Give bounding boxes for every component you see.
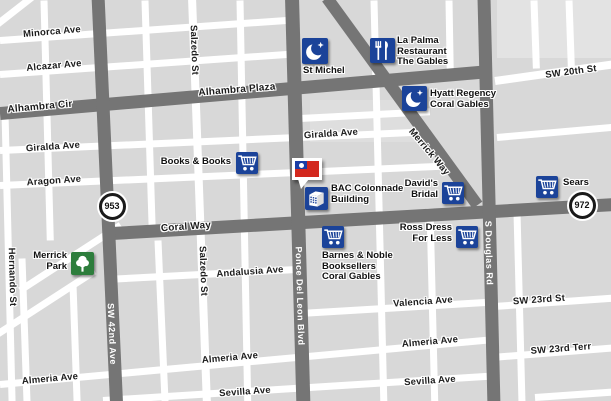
poi-label-line: Ross Dress: [400, 223, 452, 234]
street-label-s-douglas-rd: S Douglas Rd: [483, 221, 495, 286]
flag-marker-pointer: [298, 179, 309, 189]
road-east-mid-st: [497, 123, 611, 140]
poi-label-line: Building: [331, 195, 403, 206]
poi-sears-label: Sears: [563, 178, 589, 189]
poi-label-line: David's: [405, 179, 438, 190]
poi-label-line: Coral Gables: [430, 100, 496, 111]
street-label-sevilla-ave: Sevilla Ave: [404, 374, 456, 389]
street-label-almeria-ave: Almeria Ave: [21, 371, 78, 387]
poi-merrick-park-park-icon[interactable]: [71, 252, 94, 275]
poi-label-line: St Michel: [303, 66, 345, 77]
flag-sun: [299, 163, 304, 168]
poi-label-line: Books & Books: [161, 157, 231, 168]
poi-books-and-books-shopping-cart-icon[interactable]: [236, 152, 258, 174]
street-label-andalusia-ave: Andalusia Ave: [216, 264, 284, 280]
street-label-hernando-st: Hernando St: [6, 248, 18, 307]
poi-st-michel-hotel-icon[interactable]: [302, 38, 328, 64]
poi-bac-colonnade-building-icon[interactable]: [305, 187, 328, 210]
road-west-st-3: [70, 284, 81, 401]
poi-barnes-noble-shopping-cart-icon[interactable]: [322, 226, 344, 248]
poi-barnes-noble-label: Barnes & NobleBooksellersCoral Gables: [322, 251, 393, 283]
flag-marker[interactable]: [292, 158, 322, 180]
poi-label-line: Sears: [563, 178, 589, 189]
route-shield-972: 972: [569, 192, 596, 219]
road-topleft-diagonal: [0, 0, 41, 31]
poi-davids-bridal-label: David'sBridal: [405, 179, 438, 200]
poi-label-line: La Palma: [397, 36, 448, 47]
poi-davids-bridal-shopping-cart-icon[interactable]: [442, 182, 464, 204]
poi-label-line: Merrick: [33, 251, 67, 262]
city-block-block-ne-light: [497, 0, 611, 58]
poi-la-palma-restaurant-icon[interactable]: [370, 38, 395, 63]
poi-bac-colonnade-label: BAC ColonnadeBuilding: [331, 184, 403, 205]
poi-ross-dress-label: Ross DressFor Less: [400, 223, 452, 244]
poi-label-line: Park: [33, 262, 67, 273]
poi-ross-dress-shopping-cart-icon[interactable]: [456, 226, 478, 248]
poi-label-line: For Less: [400, 234, 452, 245]
poi-label-line: Hyatt Regency: [430, 89, 496, 100]
poi-label-line: The Gables: [397, 57, 448, 68]
poi-label-line: Barnes & Noble: [322, 251, 393, 262]
poi-merrick-park-label: MerrickPark: [33, 251, 67, 272]
street-label-sevilla-ave: Sevilla Ave: [219, 385, 271, 400]
street-label-aragon-ave: Aragon Ave: [26, 174, 81, 189]
poi-label-line: BAC Colonnade: [331, 184, 403, 195]
poi-label-line: Bridal: [405, 190, 438, 201]
poi-sears-shopping-cart-icon[interactable]: [536, 176, 558, 198]
road-mid-st-2: [155, 240, 169, 401]
poi-books-and-books-label: Books & Books: [161, 157, 231, 168]
street-label-salzedo-st: Salzedo St: [188, 25, 201, 75]
street-label-sw-23rd-terr: SW 23rd Terr: [530, 341, 592, 357]
poi-st-michel-label: St Michel: [303, 66, 345, 77]
coral-gables-street-map[interactable]: Minorca AveAlcazar AveAlhambra CirAlhamb…: [0, 0, 611, 401]
street-label-giralda-ave: Giralda Ave: [26, 140, 81, 155]
taiwan-flag-icon: [295, 161, 319, 177]
poi-label-line: Coral Gables: [322, 272, 393, 283]
route-shield-953: 953: [99, 193, 126, 220]
street-label-sw-20th-st: SW 20th St: [545, 63, 598, 81]
poi-hyatt-regency-hotel-icon[interactable]: [402, 86, 427, 111]
road-mid-st-1: [142, 0, 156, 225]
street-label-salzedo-st: Salzedo St: [197, 246, 210, 296]
road-bottom-right-st: [535, 388, 611, 400]
poi-hyatt-regency-label: Hyatt RegencyCoral Gables: [430, 89, 496, 110]
poi-la-palma-label: La PalmaRestaurantThe Gables: [397, 36, 448, 68]
